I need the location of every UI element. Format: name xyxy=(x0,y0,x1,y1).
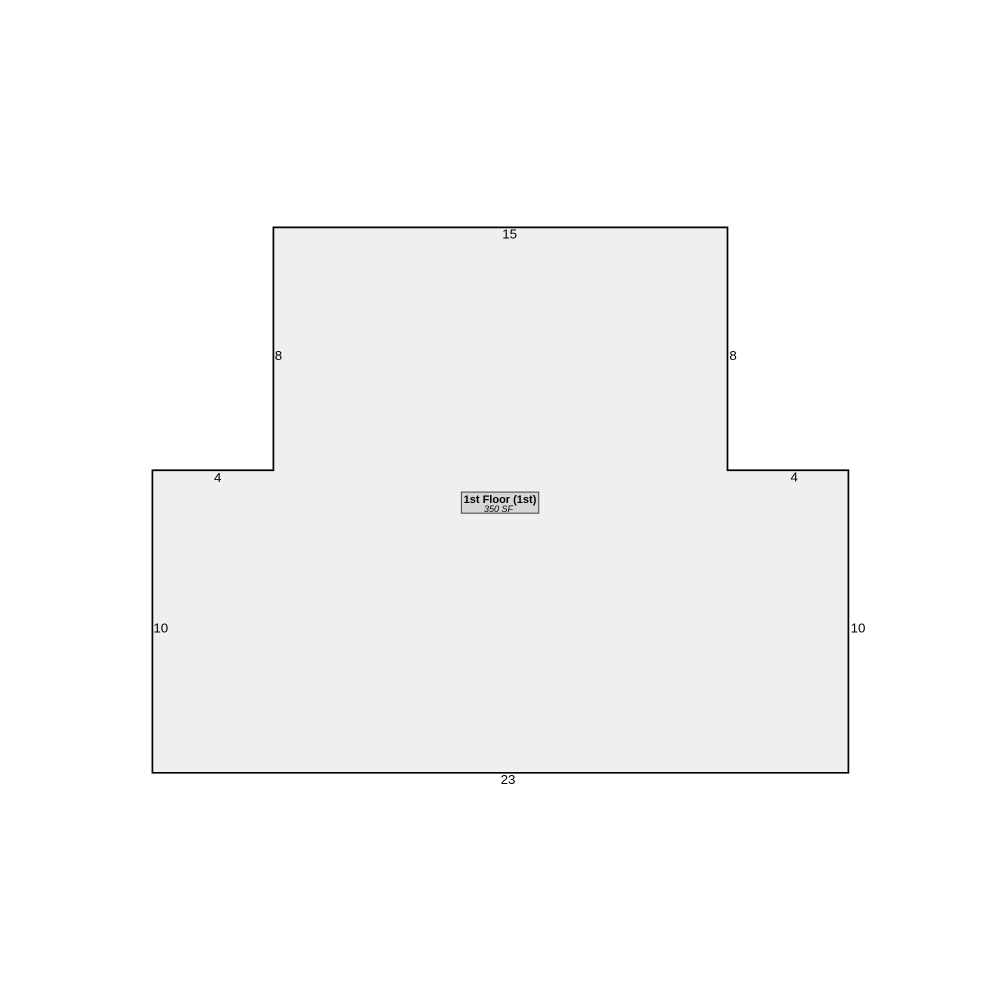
svg-text:10: 10 xyxy=(153,620,168,635)
svg-text:15: 15 xyxy=(502,227,517,242)
svg-text:4: 4 xyxy=(214,470,222,485)
svg-text:8: 8 xyxy=(729,348,736,363)
svg-text:4: 4 xyxy=(791,470,799,485)
svg-text:23: 23 xyxy=(501,772,516,787)
svg-text:8: 8 xyxy=(275,348,282,363)
svg-text:10: 10 xyxy=(851,620,866,635)
svg-text:350 SF: 350 SF xyxy=(484,504,514,514)
